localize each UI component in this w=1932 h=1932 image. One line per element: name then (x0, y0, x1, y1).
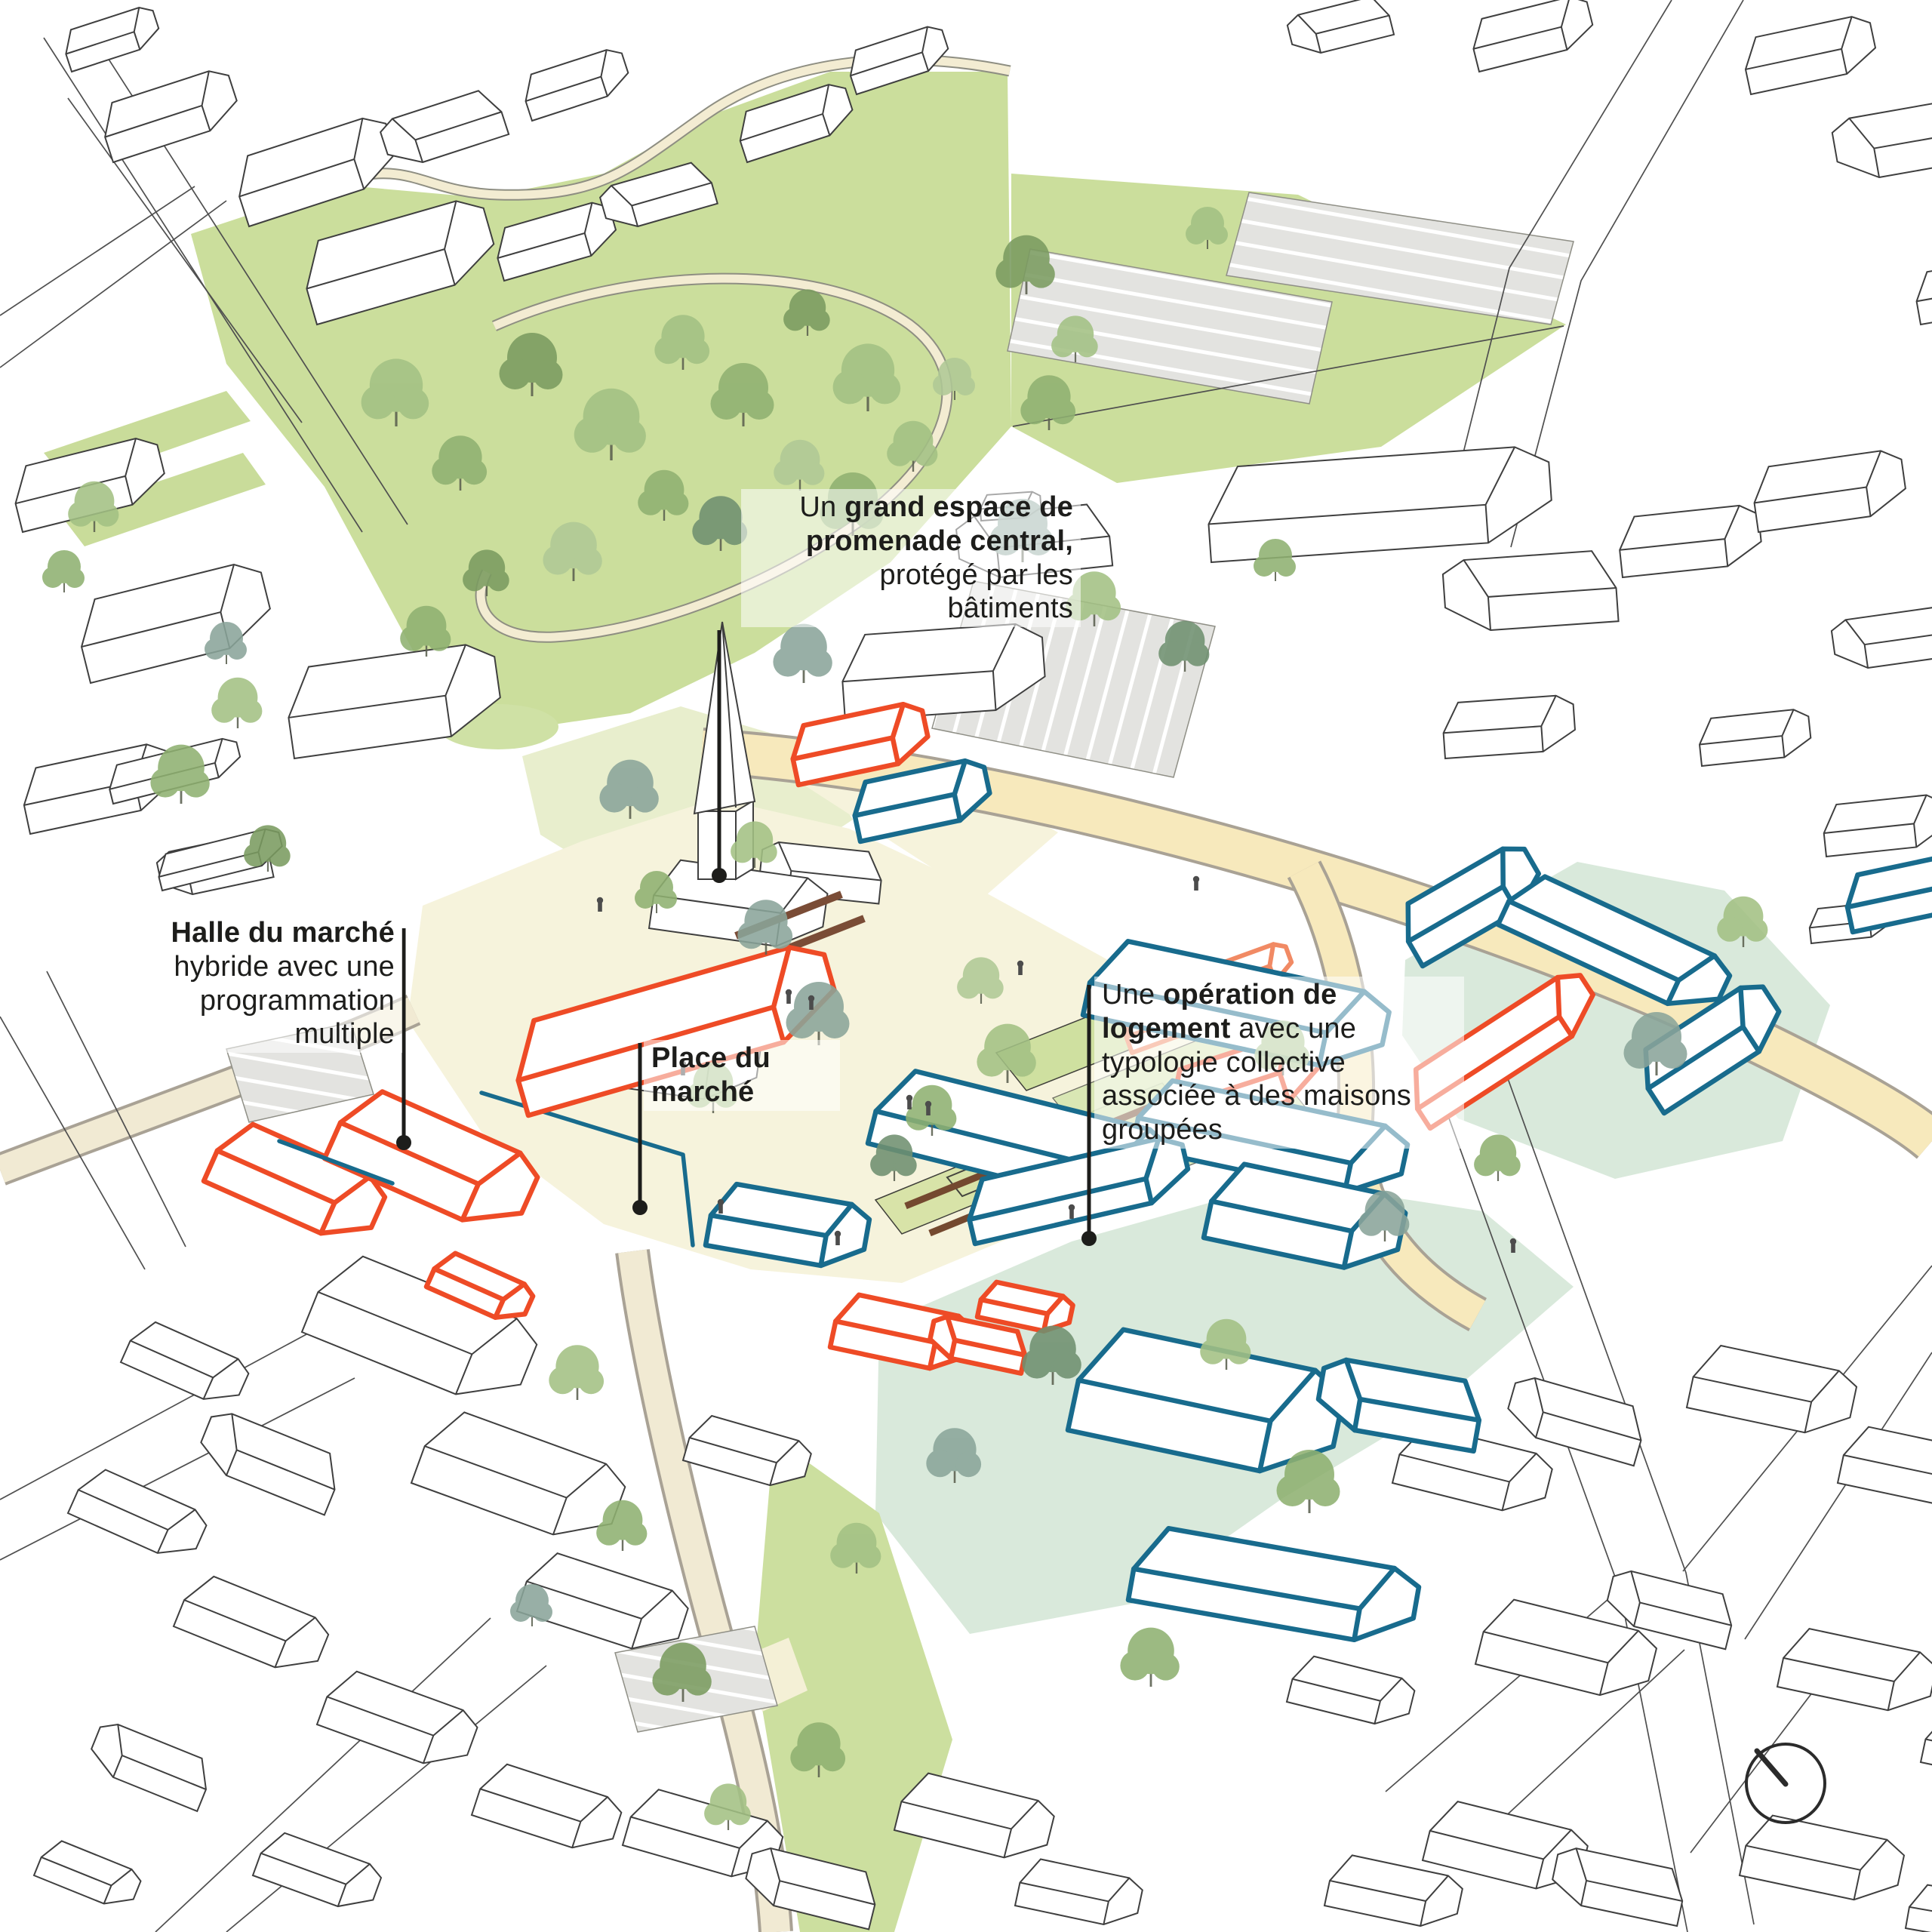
existing-building (317, 1665, 481, 1777)
annotation-promenade-bold: grand espace de promenade central, (806, 491, 1073, 557)
existing-building (1777, 1625, 1932, 1718)
existing-building (1921, 1712, 1932, 1787)
tree (1120, 1628, 1179, 1687)
annotation-promenade-post: protégé par les bâtiments (880, 559, 1074, 625)
existing-building (1287, 1653, 1417, 1731)
existing-building (174, 1570, 333, 1681)
existing-building (1740, 1811, 1906, 1908)
annotation-place-bold: Place du marché (651, 1042, 771, 1108)
existing-building (1830, 95, 1932, 184)
existing-building (71, 558, 277, 683)
existing-building (1740, 14, 1880, 94)
existing-building (1906, 1882, 1932, 1932)
annotation-logement: Une opération de logement avec une typol… (1094, 977, 1464, 1149)
existing-building (68, 1463, 211, 1566)
existing-building (1617, 503, 1764, 577)
tree (211, 678, 262, 728)
person-figure (1193, 876, 1199, 891)
north-indicator-icon (1746, 1744, 1825, 1823)
existing-building (121, 1316, 252, 1412)
leader-dot-logement (1081, 1231, 1097, 1246)
annotation-halle-bold: Halle du marché (171, 917, 395, 949)
existing-building (1467, 0, 1597, 72)
existing-building (518, 46, 633, 121)
existing-building (1549, 1845, 1689, 1926)
leader-dot-place (632, 1200, 648, 1215)
existing-building (1821, 793, 1932, 857)
new-building-blue (1841, 851, 1932, 932)
existing-building (1830, 605, 1932, 672)
existing-building (1015, 1856, 1144, 1930)
existing-building (85, 1718, 216, 1811)
existing-building (96, 66, 243, 162)
existing-building (1697, 708, 1813, 766)
annotation-promenade: Un grand espace de promenade central, pr… (741, 489, 1081, 627)
annotation-place-du-marche: Place du marché (644, 1040, 840, 1111)
existing-building (1285, 0, 1394, 59)
existing-building (253, 1828, 384, 1917)
existing-building (34, 1836, 143, 1913)
existing-building (193, 1407, 346, 1515)
leader-dot-promenade (712, 868, 727, 883)
existing-building (1749, 448, 1909, 532)
new-building-blue (1128, 1524, 1421, 1649)
existing-building (377, 86, 509, 172)
existing-building (1442, 549, 1619, 633)
annotation-halle-post: hybride avec une programmation multiple (174, 951, 395, 1051)
tree (549, 1345, 604, 1400)
masterplan-illustration: Un grand espace de promenade central, pr… (0, 0, 1932, 1932)
leader-dot-halle (396, 1135, 411, 1150)
existing-building (472, 1758, 625, 1859)
existing-building (1838, 1423, 1932, 1514)
existing-building (1687, 1341, 1859, 1441)
existing-building (1912, 254, 1932, 325)
tree (1474, 1134, 1521, 1181)
existing-building (60, 4, 164, 72)
tree (42, 550, 85, 592)
annotation-promenade-pre: Un (799, 491, 844, 523)
existing-building (302, 1246, 543, 1416)
annotation-halle: Halle du marché hybride avec une program… (115, 915, 402, 1053)
annotation-logement-pre: Une (1102, 979, 1163, 1011)
existing-building (1441, 694, 1577, 758)
existing-building (894, 1768, 1057, 1866)
